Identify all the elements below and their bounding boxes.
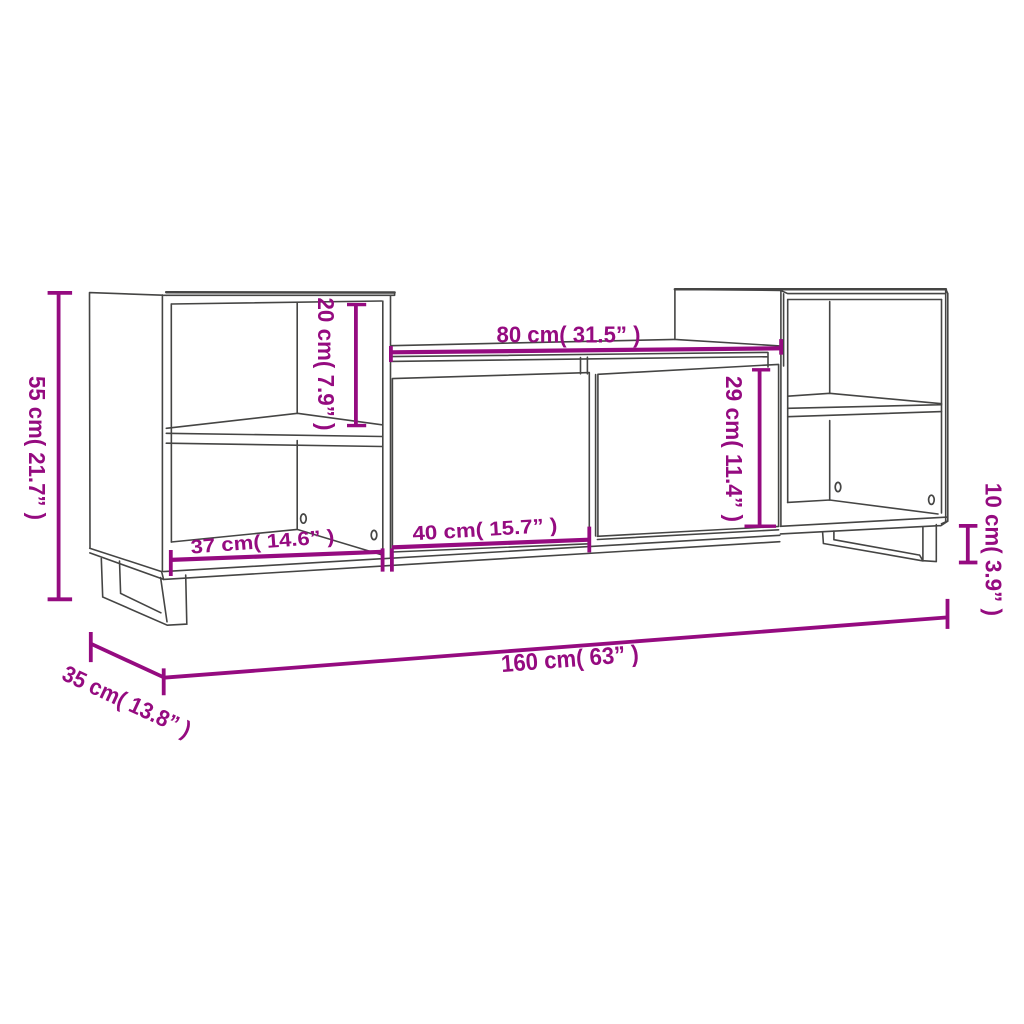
svg-text:29 cm( 11.4” ): 29 cm( 11.4” ) [721,376,747,522]
svg-text:55 cm( 21.7” ): 55 cm( 21.7” ) [24,376,50,520]
svg-text:20 cm( 7.9” ): 20 cm( 7.9” ) [313,298,339,431]
svg-text:10 cm( 3.9” ): 10 cm( 3.9” ) [981,483,1007,616]
svg-text:80 cm( 31.5” ): 80 cm( 31.5” ) [497,322,641,348]
